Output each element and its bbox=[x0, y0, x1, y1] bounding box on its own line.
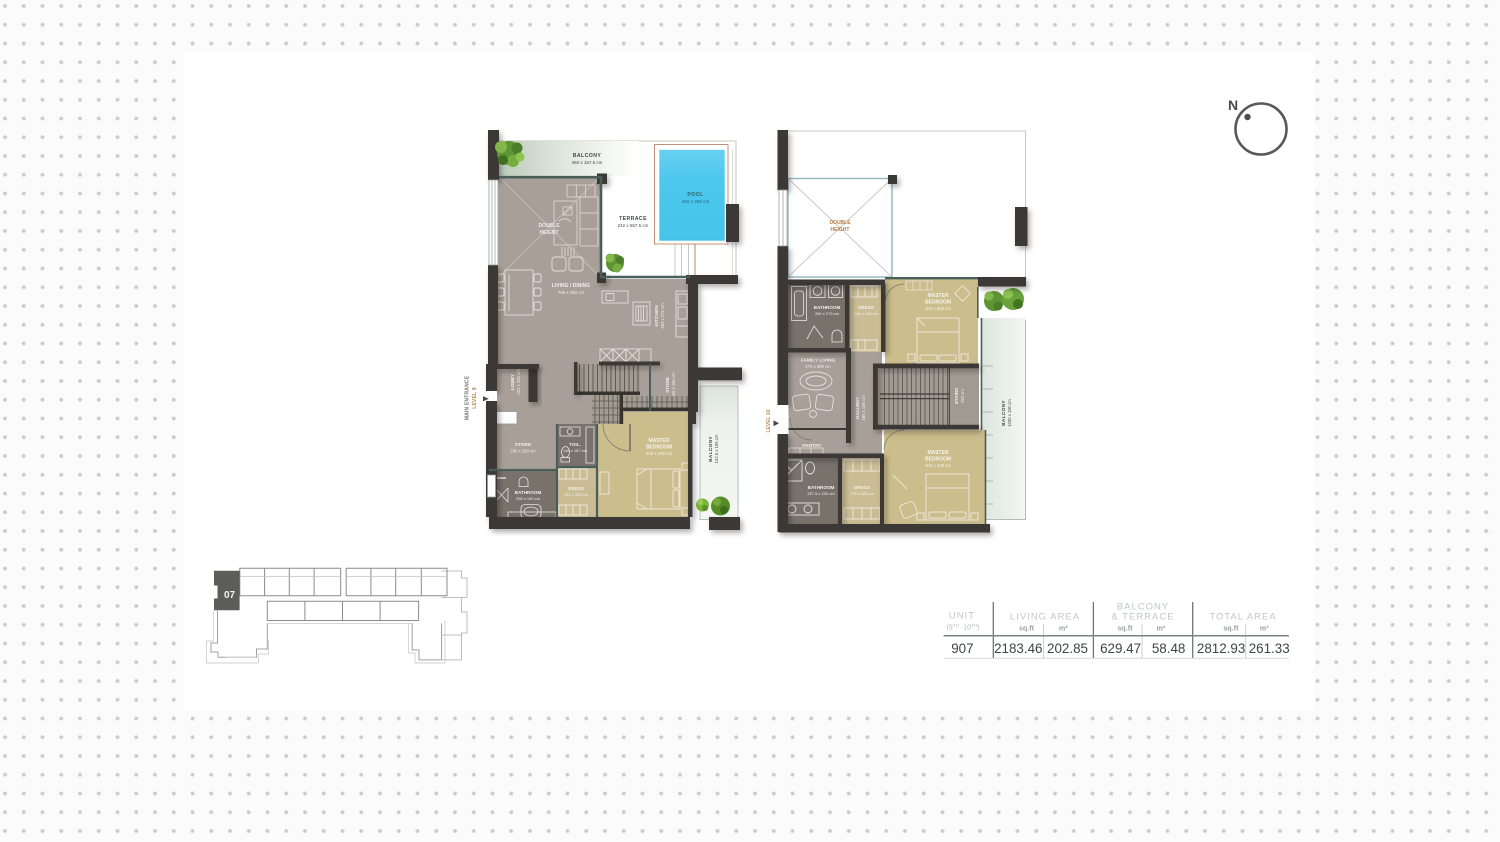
svg-text:TOIL.: TOIL. bbox=[569, 442, 581, 447]
svg-text:148 x 167 cm: 148 x 167 cm bbox=[563, 448, 588, 453]
svg-text:460 x 157.5 cm: 460 x 157.5 cm bbox=[572, 160, 603, 165]
svg-text:270 x 300 cm: 270 x 300 cm bbox=[805, 364, 831, 369]
svg-text:907: 907 bbox=[951, 641, 973, 656]
svg-text:07: 07 bbox=[224, 590, 236, 601]
svg-text:141 x 300 cm: 141 x 300 cm bbox=[564, 492, 589, 497]
svg-text:STORE: STORE bbox=[515, 442, 532, 448]
svg-text:242 x 557.5 cm: 242 x 557.5 cm bbox=[618, 223, 649, 228]
svg-text:450 x 555 cm: 450 x 555 cm bbox=[925, 306, 952, 311]
svg-text:HEIGHT: HEIGHT bbox=[831, 227, 850, 233]
svg-text:BEDROOM: BEDROOM bbox=[646, 445, 672, 451]
svg-text:261.33: 261.33 bbox=[1249, 641, 1290, 656]
svg-text:sq.ft: sq.ft bbox=[1117, 623, 1133, 632]
svg-text:BEDROOM: BEDROOM bbox=[925, 457, 951, 463]
svg-text:202.85: 202.85 bbox=[1047, 641, 1088, 656]
svg-text:460 x 430 cm: 460 x 430 cm bbox=[925, 463, 952, 468]
svg-text:382 x 272 cm: 382 x 272 cm bbox=[660, 303, 665, 329]
svg-text:250 cm: 250 cm bbox=[960, 389, 965, 403]
svg-text:BALCONY: BALCONY bbox=[573, 153, 602, 159]
svg-text:TERRACE: TERRACE bbox=[619, 216, 647, 222]
svg-text:sq.ft: sq.ft bbox=[1223, 623, 1239, 632]
svg-text:UNIT: UNIT bbox=[949, 610, 975, 621]
svg-text:DOUBLE: DOUBLE bbox=[538, 223, 560, 229]
svg-text:m²: m² bbox=[1157, 623, 1166, 632]
svg-text:480 x 105 cm: 480 x 105 cm bbox=[861, 395, 866, 421]
svg-text:DRESS: DRESS bbox=[854, 485, 870, 490]
svg-text:BATHROOM: BATHROOM bbox=[814, 305, 841, 310]
svg-text:2183.46: 2183.46 bbox=[994, 641, 1042, 656]
svg-text:460 x 265 cm: 460 x 265 cm bbox=[682, 199, 710, 204]
svg-text:DRESS: DRESS bbox=[568, 486, 584, 491]
svg-text:795 x 450 cm: 795 x 450 cm bbox=[558, 290, 585, 295]
svg-text:STAIRS: STAIRS bbox=[954, 388, 959, 405]
svg-text:260 x 275 cm: 260 x 275 cm bbox=[815, 311, 840, 316]
svg-text:300 x 185 cm: 300 x 185 cm bbox=[671, 372, 676, 398]
svg-text:POOL: POOL bbox=[687, 192, 704, 198]
svg-text:175 x 265 cm: 175 x 265 cm bbox=[850, 491, 875, 496]
svg-text:257.5 x 200 cm: 257.5 x 200 cm bbox=[807, 491, 835, 496]
svg-text:102.5 x 195 cm: 102.5 x 195 cm bbox=[714, 434, 719, 463]
svg-text:MASTER: MASTER bbox=[927, 293, 949, 299]
svg-text:LIVING AREA: LIVING AREA bbox=[1010, 612, 1080, 623]
svg-text:LIVING / DINING: LIVING / DINING bbox=[552, 283, 590, 289]
svg-text:sq.ft: sq.ft bbox=[1019, 623, 1035, 632]
svg-text:MASTER: MASTER bbox=[648, 438, 670, 444]
svg-text:400 x 400 cm: 400 x 400 cm bbox=[646, 451, 673, 456]
svg-text:N: N bbox=[1228, 97, 1238, 113]
svg-text:2812.93: 2812.93 bbox=[1197, 641, 1245, 656]
svg-text:BATHROOM: BATHROOM bbox=[808, 485, 835, 490]
svg-text:m²: m² bbox=[1260, 623, 1269, 632]
svg-text:BATHROOM: BATHROOM bbox=[515, 490, 542, 495]
svg-text:1030 x 190 cm: 1030 x 190 cm bbox=[1007, 399, 1012, 427]
svg-text:HALLWAY: HALLWAY bbox=[855, 397, 860, 419]
svg-text:& TERRACE: & TERRACE bbox=[1111, 612, 1174, 623]
svg-text:295 x 190 cm: 295 x 190 cm bbox=[510, 449, 536, 454]
svg-text:629.47: 629.47 bbox=[1100, 641, 1141, 656]
svg-text:TOTAL AREA: TOTAL AREA bbox=[1209, 612, 1276, 623]
svg-text:LOBBY: LOBBY bbox=[510, 374, 515, 390]
svg-text:STORE: STORE bbox=[665, 377, 670, 393]
svg-text:DOUBLE: DOUBLE bbox=[829, 220, 851, 226]
svg-text:DRESS: DRESS bbox=[858, 305, 874, 310]
svg-text:148 x 348 cm: 148 x 348 cm bbox=[854, 311, 879, 316]
svg-text:MASTER: MASTER bbox=[927, 450, 949, 456]
svg-text:LEVEL 10: LEVEL 10 bbox=[766, 409, 772, 432]
svg-text:MAIN ENTRANCE: MAIN ENTRANCE bbox=[465, 375, 471, 420]
svg-text:58.48: 58.48 bbox=[1152, 641, 1186, 656]
svg-text:BEDROOM: BEDROOM bbox=[925, 300, 951, 306]
svg-text:295 x 190 cm: 295 x 190 cm bbox=[516, 496, 541, 501]
svg-text:FAMILY LIVING: FAMILY LIVING bbox=[801, 358, 836, 364]
svg-text:m²: m² bbox=[1059, 623, 1068, 632]
svg-text:LEVEL 9: LEVEL 9 bbox=[472, 387, 478, 409]
svg-text:322 x 235 cm: 322 x 235 cm bbox=[516, 369, 521, 395]
svg-text:HEIGHT: HEIGHT bbox=[540, 230, 559, 236]
